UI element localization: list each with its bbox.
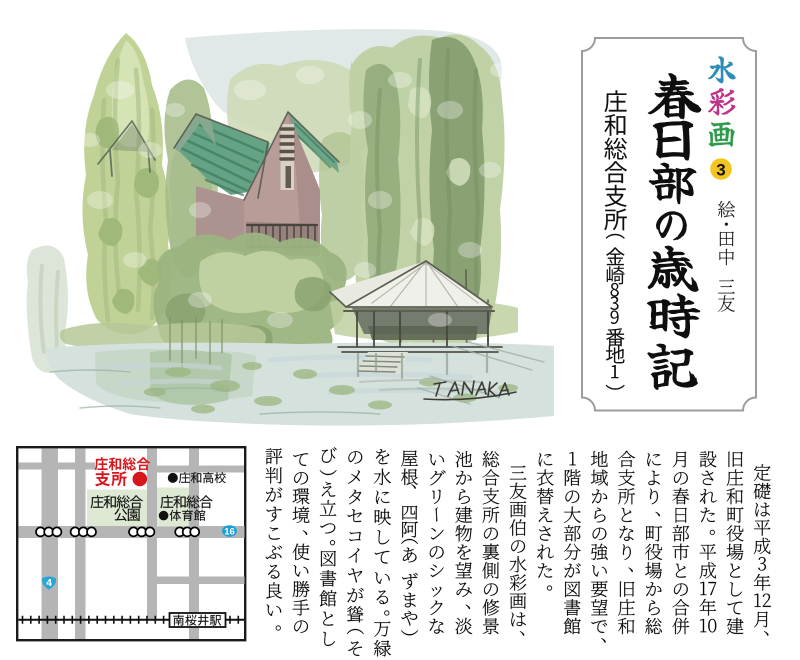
svg-text:16: 16 bbox=[224, 526, 235, 537]
svg-text:3: 3 bbox=[716, 161, 725, 180]
svg-text:4: 4 bbox=[46, 577, 52, 589]
